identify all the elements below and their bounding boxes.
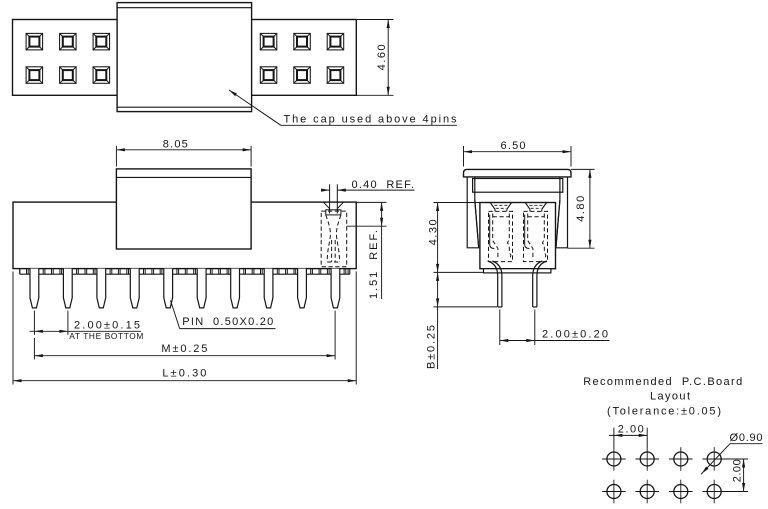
svg-text:2.00: 2.00 <box>618 423 644 435</box>
svg-text:PIN 0.50X0.20: PIN 0.50X0.20 <box>182 316 273 328</box>
svg-text:4.60: 4.60 <box>376 44 388 70</box>
svg-text:Layout: Layout <box>650 391 690 403</box>
svg-text:4.30: 4.30 <box>428 219 440 245</box>
svg-text:AT THE BOTTOM: AT THE BOTTOM <box>69 331 143 341</box>
svg-text:Recommended P.C.Board: Recommended P.C.Board <box>583 376 742 388</box>
svg-text:0.40 REF.: 0.40 REF. <box>352 179 414 191</box>
svg-text:4.80: 4.80 <box>575 196 587 222</box>
svg-text:L±0.30: L±0.30 <box>162 368 206 380</box>
svg-text:M±0.25: M±0.25 <box>161 343 207 355</box>
svg-text:2.00: 2.00 <box>731 459 743 482</box>
svg-text:The cap used above 4pins: The cap used above 4pins <box>284 113 458 125</box>
svg-text:1.51 REF.: 1.51 REF. <box>368 230 380 299</box>
svg-text:B±0.25: B±0.25 <box>425 325 437 369</box>
svg-text:8.05: 8.05 <box>163 139 188 151</box>
svg-text:2.00±0.15: 2.00±0.15 <box>74 320 140 332</box>
svg-text:6.50: 6.50 <box>501 140 526 152</box>
svg-text:Ø0.90: Ø0.90 <box>730 432 763 444</box>
svg-text:(Tolerance:±0.05): (Tolerance:±0.05) <box>607 405 721 417</box>
svg-text:2.00±0.20: 2.00±0.20 <box>542 328 608 340</box>
